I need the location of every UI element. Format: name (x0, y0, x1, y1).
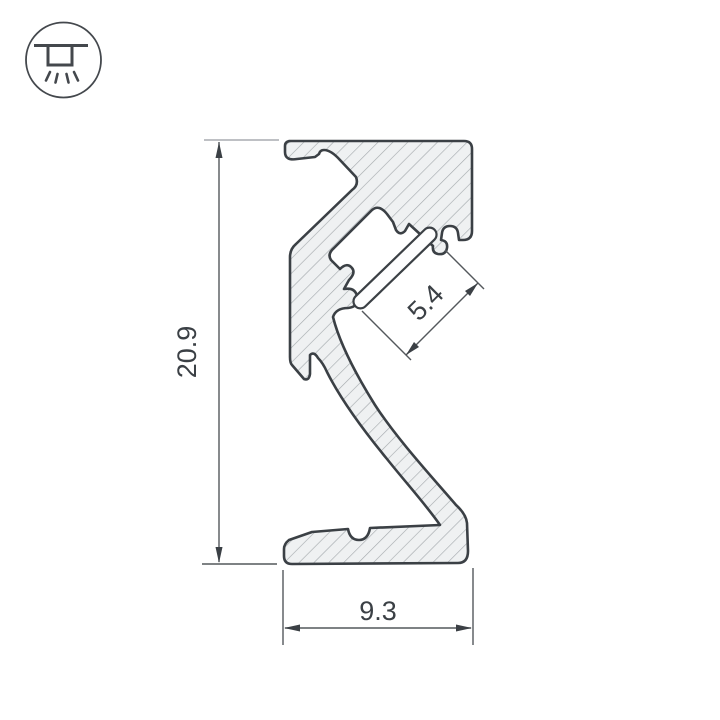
technical-drawing-page: 20.9 5.4 9.3 (0, 0, 720, 720)
dimension-height-label: 20.9 (172, 326, 202, 379)
dimension-base-label: 9.3 (359, 596, 397, 626)
drawing-canvas: 20.9 5.4 9.3 (0, 0, 720, 720)
icon-circle (26, 23, 101, 98)
recessed-downlight-icon (26, 23, 101, 98)
